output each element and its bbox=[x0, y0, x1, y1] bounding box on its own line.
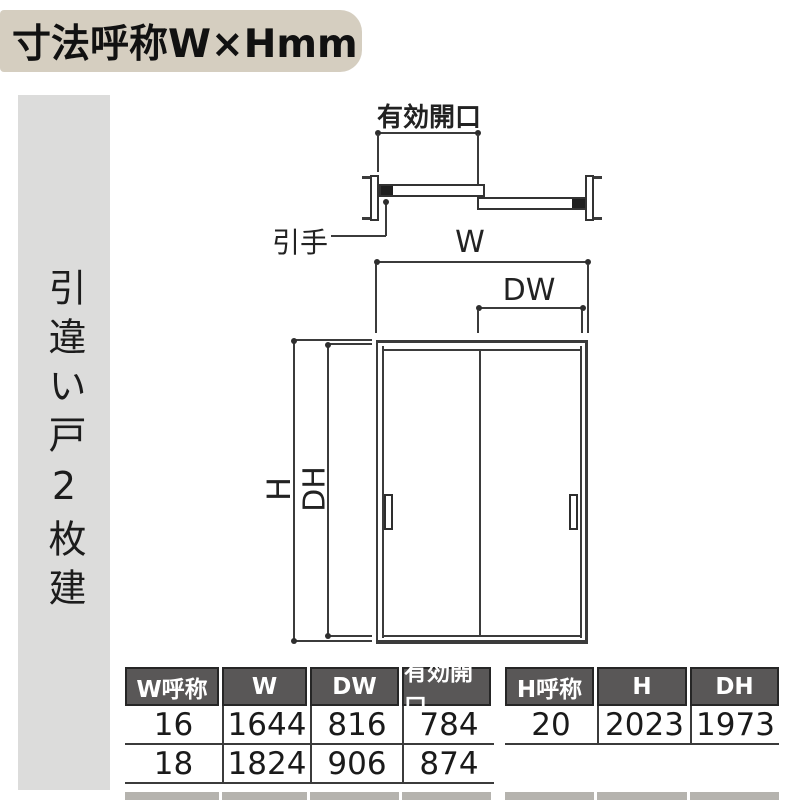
product-spec-image: 寸法呼称W×Hmm 引違い戸2枚建 有効開口 引手 bbox=[0, 0, 800, 800]
dw-dim-line bbox=[478, 307, 584, 309]
table-header-cell: H bbox=[597, 667, 687, 706]
table-header-cell: W bbox=[222, 667, 307, 706]
extension-line bbox=[587, 264, 589, 333]
cutoff-header-cell bbox=[125, 792, 219, 800]
table-cell: 816 bbox=[310, 706, 402, 743]
table-header-row: W呼称WDW有効開口 bbox=[125, 667, 494, 706]
frame-inner-left bbox=[382, 346, 384, 638]
frame-inner-right bbox=[580, 346, 582, 638]
w-dim-line bbox=[376, 261, 589, 263]
cutoff-header-cell bbox=[597, 792, 687, 800]
left-door-stile bbox=[381, 186, 393, 195]
table-cell: 18 bbox=[125, 745, 222, 782]
table-header-cell: 有効開口 bbox=[402, 667, 491, 706]
table-cell: 2023 bbox=[597, 706, 690, 743]
w-dimension-table: W呼称WDW有効開口161644816784181824906874 bbox=[125, 667, 494, 784]
dh-dim-line bbox=[327, 344, 329, 638]
table-cell: 20 bbox=[505, 706, 597, 743]
extension-line bbox=[375, 264, 377, 333]
right-door-stile bbox=[572, 199, 585, 208]
dw-dim-label: DW bbox=[503, 273, 556, 308]
door-frame bbox=[376, 340, 588, 644]
extension-line bbox=[581, 310, 583, 333]
right-jamb-cap bbox=[594, 217, 602, 220]
cutoff-header-cell bbox=[310, 792, 399, 800]
table-header-cell: H呼称 bbox=[505, 667, 594, 706]
h-dimension-table: H呼称HDH2020231973 bbox=[505, 667, 779, 745]
table-cell: 874 bbox=[402, 745, 494, 782]
table-header-row: H呼称HDH bbox=[505, 667, 779, 706]
leader-dot bbox=[383, 199, 389, 205]
dim-dot bbox=[291, 638, 297, 644]
extension-line bbox=[477, 310, 479, 333]
h-bottom-tick bbox=[292, 640, 372, 642]
table-cell: 1973 bbox=[690, 706, 779, 743]
table-cell: 784 bbox=[402, 706, 494, 743]
cutoff-header-cell bbox=[505, 792, 594, 800]
dim-dot bbox=[325, 633, 331, 639]
frame-inner-top bbox=[383, 349, 582, 351]
leader-line bbox=[331, 235, 386, 237]
dim-dot bbox=[291, 338, 297, 344]
category-label: 引違い戸2枚建 bbox=[18, 268, 110, 617]
effective-opening-dim-line bbox=[378, 132, 479, 134]
table-row: 181824906874 bbox=[125, 745, 494, 784]
title-banner: 寸法呼称W×Hmm bbox=[0, 10, 362, 72]
pull-handle-label: 引手 bbox=[272, 221, 328, 261]
table-cell: 1824 bbox=[222, 745, 310, 782]
left-jamb-cap bbox=[362, 217, 370, 220]
dim-dot bbox=[325, 342, 331, 348]
table-row: 161644816784 bbox=[125, 706, 494, 745]
dh-bottom-tick bbox=[326, 635, 372, 637]
next-table-cutoff-right bbox=[505, 792, 779, 800]
frame-inner-bottom bbox=[383, 635, 582, 637]
h-top-tick bbox=[292, 339, 372, 341]
category-sidebar: 引違い戸2枚建 bbox=[18, 95, 110, 790]
next-table-cutoff-left bbox=[125, 792, 494, 800]
title-text: 寸法呼称W×Hmm bbox=[0, 13, 358, 69]
left-door-panel-plan bbox=[379, 184, 485, 197]
left-jamb-cap bbox=[362, 176, 370, 179]
cutoff-header-cell bbox=[690, 792, 779, 800]
left-jamb bbox=[370, 175, 379, 221]
table-header-cell: W呼称 bbox=[125, 667, 219, 706]
effective-opening-label: 有効開口 bbox=[377, 97, 481, 134]
table-header-cell: DW bbox=[310, 667, 399, 706]
table-row: 2020231973 bbox=[505, 706, 779, 745]
w-dim-label: W bbox=[455, 225, 485, 260]
cutoff-header-cell bbox=[222, 792, 307, 800]
right-jamb-cap bbox=[594, 176, 602, 179]
table-cell: 16 bbox=[125, 706, 222, 743]
table-cell: 1644 bbox=[222, 706, 310, 743]
table-header-cell: DH bbox=[690, 667, 779, 706]
leader-line bbox=[385, 203, 387, 236]
extension-line bbox=[377, 134, 379, 172]
right-door-panel-plan bbox=[477, 197, 587, 210]
cutoff-header-cell bbox=[402, 792, 491, 800]
h-dim-line bbox=[293, 341, 295, 642]
left-door-handle bbox=[384, 494, 393, 530]
table-cell: 906 bbox=[310, 745, 402, 782]
right-door-handle bbox=[569, 494, 578, 530]
meeting-stile-line bbox=[479, 351, 481, 636]
dh-top-tick bbox=[326, 343, 372, 345]
